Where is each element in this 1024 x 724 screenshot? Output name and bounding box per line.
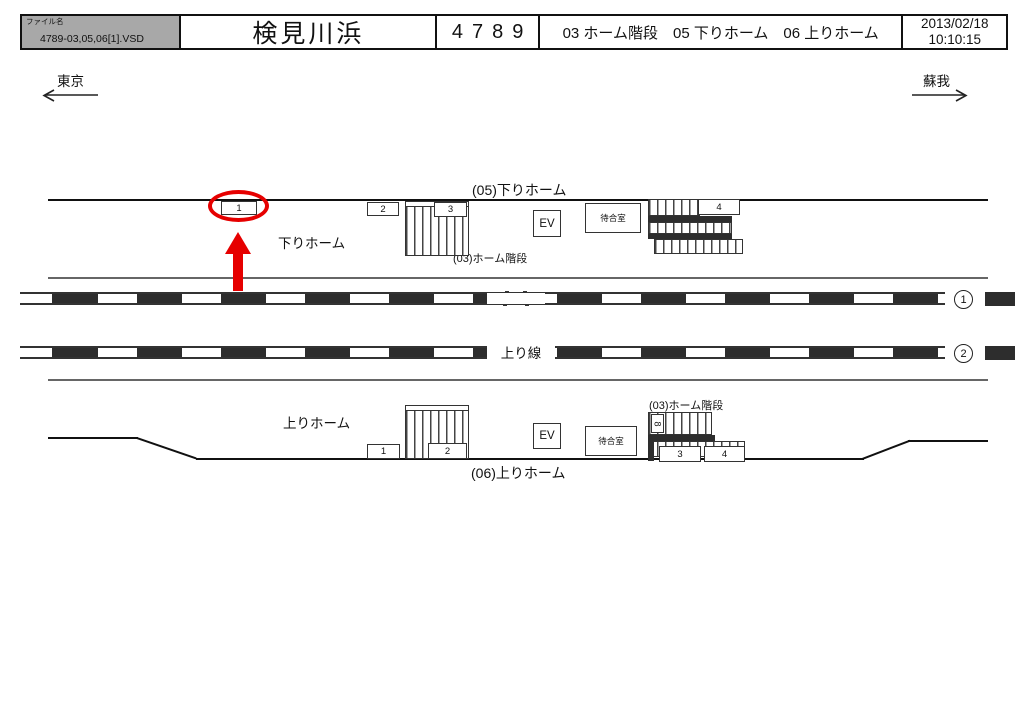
track-2-number-text: 2 — [960, 348, 966, 360]
direction-left: 東京 — [40, 74, 100, 103]
station-number-cell: 4789 — [437, 16, 540, 48]
track-2-label-sign: 上り線 — [487, 341, 555, 362]
elevator-bottom: EV — [533, 423, 561, 449]
up-platform-edge-middle — [196, 458, 864, 460]
sections-cell: 03 ホーム階段 05 下りホーム 06 上りホーム — [540, 16, 904, 48]
stair-divider — [648, 435, 715, 441]
label-fragment — [525, 304, 529, 306]
highlight-arrow-head — [225, 232, 251, 254]
down-platform-title: (05)下りホーム — [472, 180, 566, 200]
stairs-landing — [406, 406, 468, 411]
track-2-number: 2 — [954, 344, 973, 363]
track-2 — [20, 346, 945, 359]
stair-band — [648, 222, 732, 234]
file-label: ファイル名 — [26, 18, 64, 26]
down-platform-top-edge — [48, 199, 988, 201]
track-1-number: 1 — [954, 290, 973, 309]
sections-text: 03 ホーム階段 05 下りホーム 06 上りホーム — [563, 22, 879, 43]
boarding-sign-1-up: 1 — [367, 444, 400, 459]
track-1-obscured-sign — [487, 293, 545, 304]
time-text: 10:10:15 — [928, 32, 981, 48]
boarding-sign-3: 3 — [434, 202, 467, 217]
label-fragment — [503, 304, 507, 306]
boarding-sign-2-up: 2 — [428, 443, 467, 459]
stair-band — [654, 239, 743, 254]
up-platform-title: (06)上りホーム — [471, 463, 565, 483]
file-name-cell: ファイル名 4789-03,05,06[1].VSD — [22, 16, 181, 48]
highlight-arrow-shaft — [233, 253, 243, 291]
file-name: 4789-03,05,06[1].VSD — [40, 33, 144, 45]
station-number: 4789 — [452, 21, 533, 44]
up-platform-edge-slant-right — [862, 440, 910, 460]
highlight-circle — [208, 190, 269, 222]
boarding-sign-3-up: 3 — [659, 446, 701, 462]
boarding-sign-4-up: 4 — [704, 446, 745, 462]
track-1-number-text: 1 — [960, 294, 966, 306]
up-platform-top-edge — [48, 379, 988, 381]
station-name: 検見川浜 — [252, 14, 364, 50]
direction-right: 蘇我 — [910, 74, 970, 103]
direction-left-label: 東京 — [57, 74, 100, 89]
track-1-end-segment — [985, 292, 1015, 306]
stair-divider — [648, 234, 732, 239]
direction-right-label: 蘇我 — [923, 74, 970, 89]
date-text: 2013/02/18 — [921, 16, 989, 32]
header-table: ファイル名 4789-03,05,06[1].VSD 検見川浜 4789 03 … — [20, 14, 1008, 50]
track-2-label: 上り線 — [501, 342, 542, 362]
left-arrow-icon — [40, 89, 100, 103]
down-platform-bottom-edge — [48, 277, 988, 279]
station-name-cell: 検見川浜 — [181, 16, 437, 48]
stair-band — [648, 199, 700, 216]
boarding-sign-2: 2 — [367, 202, 399, 216]
waiting-room-top: 待合室 — [585, 203, 641, 233]
down-platform-label: 下りホーム — [278, 232, 345, 252]
label-fragment — [523, 291, 527, 293]
right-arrow-icon — [910, 89, 970, 103]
stair-sign-8-text: 8 — [652, 421, 662, 426]
stairs-right-bottom: 8 3 4 — [648, 412, 745, 462]
track-1 — [20, 292, 945, 305]
up-platform-label: 上りホーム — [283, 412, 350, 432]
elevator-top: EV — [533, 210, 561, 237]
up-platform-edge-left — [48, 437, 138, 439]
track-2-end-segment — [985, 346, 1015, 360]
stairs-right-top: 4 — [648, 199, 743, 255]
up-platform-edge-right — [908, 440, 988, 442]
datetime-cell: 2013/02/18 10:10:15 — [903, 16, 1006, 48]
label-fragment — [505, 291, 509, 293]
waiting-room-bottom: 待合室 — [585, 426, 637, 456]
stair-divider — [648, 441, 654, 461]
stair-divider — [648, 216, 732, 222]
station-diagram-page: ファイル名 4789-03,05,06[1].VSD 検見川浜 4789 03 … — [0, 0, 1024, 724]
up-stairs-label: (03)ホーム階段 — [649, 397, 723, 413]
boarding-sign-4: 4 — [698, 199, 740, 215]
up-platform-edge-slant-left — [136, 437, 196, 459]
stair-sign-8: 8 — [651, 414, 664, 433]
